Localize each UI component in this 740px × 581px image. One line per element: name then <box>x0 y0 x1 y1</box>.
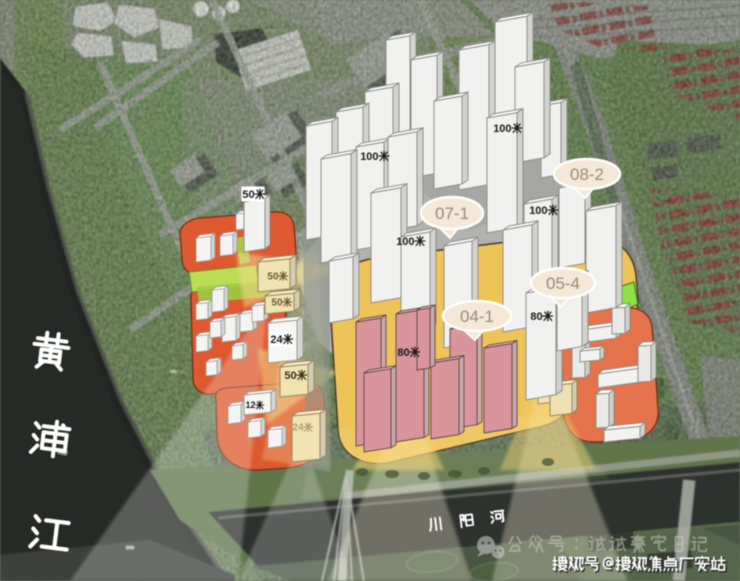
svg-text:50: 50 <box>271 298 283 309</box>
svg-text:05-4: 05-4 <box>546 274 580 293</box>
svg-text:50: 50 <box>267 272 279 283</box>
svg-text:08-2: 08-2 <box>570 165 604 184</box>
svg-text:100: 100 <box>493 123 511 135</box>
svg-text:80: 80 <box>530 311 542 323</box>
svg-text:100: 100 <box>360 151 378 163</box>
svg-text:24: 24 <box>270 334 283 346</box>
svg-text:12: 12 <box>246 400 256 410</box>
svg-text:100: 100 <box>529 205 547 217</box>
svg-text:07-1: 07-1 <box>435 204 469 223</box>
svg-text:80: 80 <box>397 347 409 359</box>
svg-text:04-1: 04-1 <box>460 307 494 326</box>
svg-text:50: 50 <box>242 189 254 201</box>
svg-text:24: 24 <box>292 423 304 434</box>
svg-text:50: 50 <box>284 370 296 382</box>
svg-text:100: 100 <box>396 236 414 248</box>
